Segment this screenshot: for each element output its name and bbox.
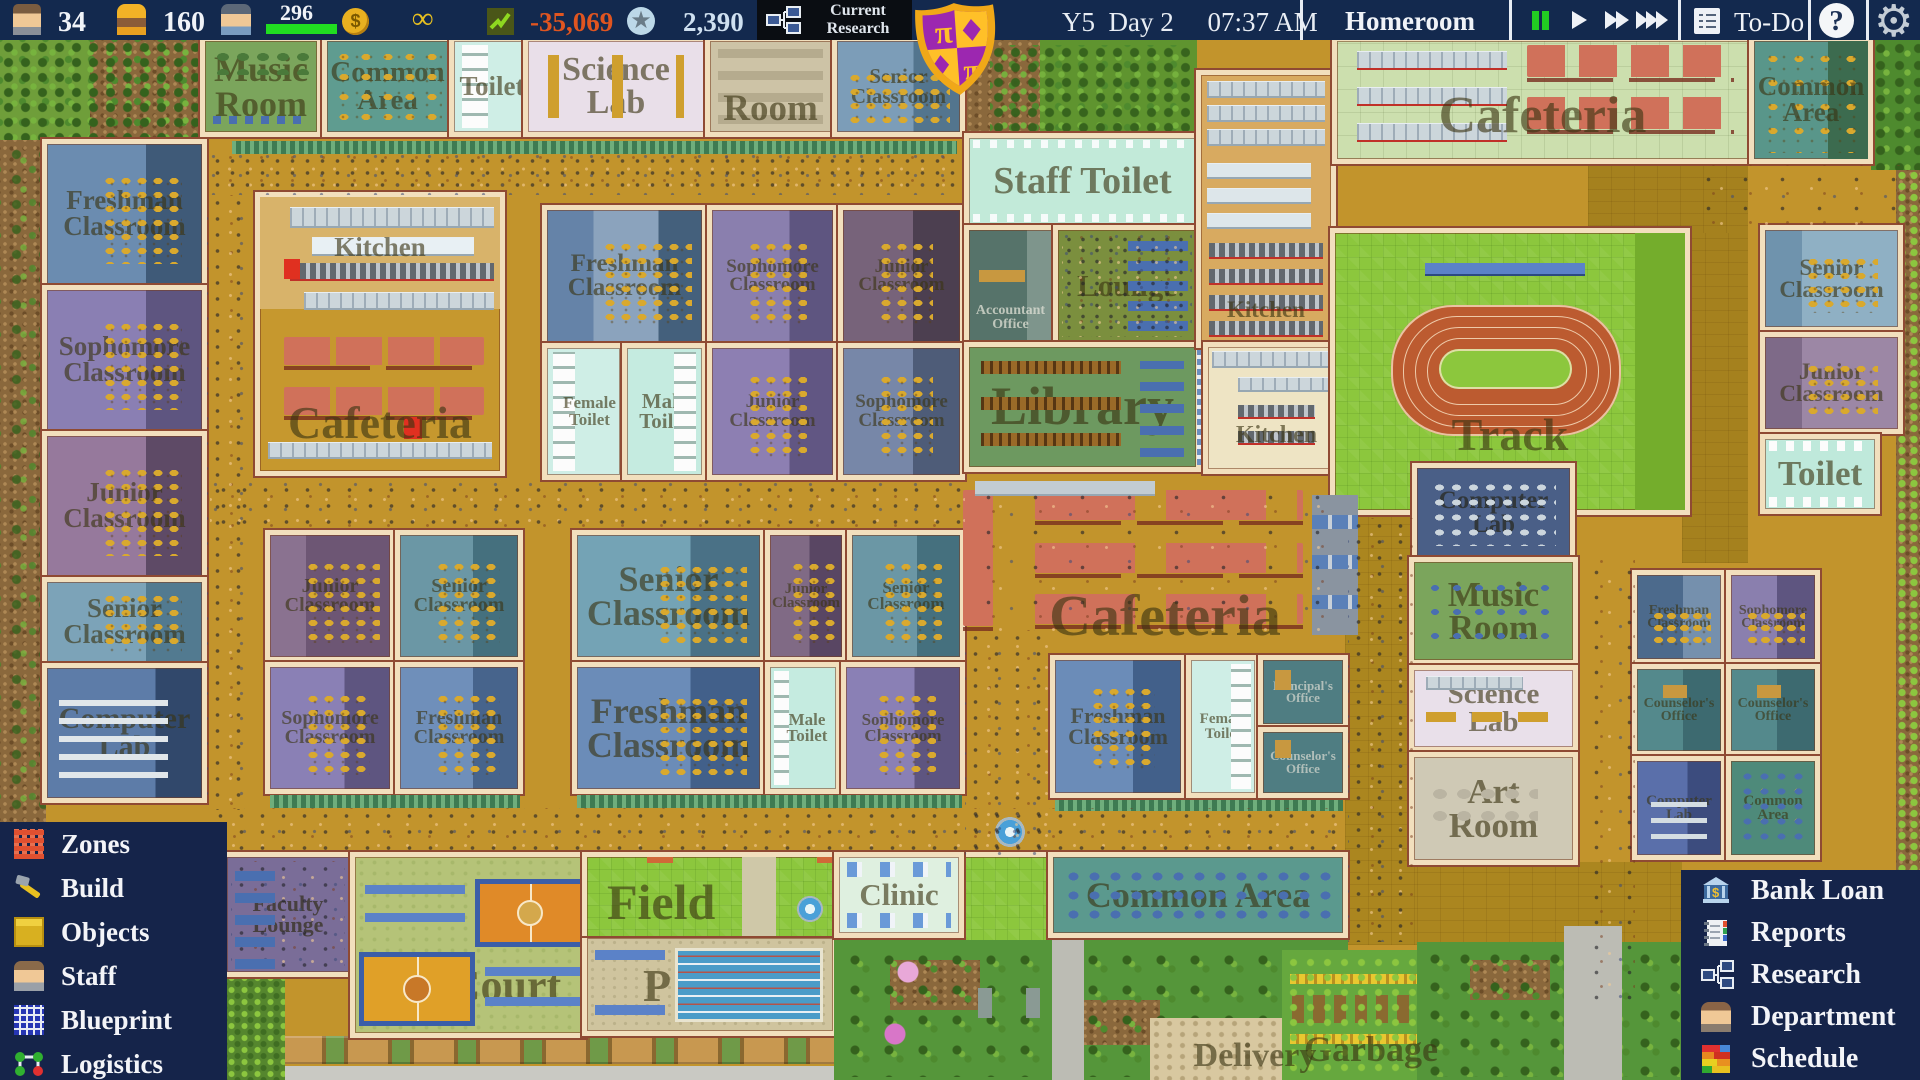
svg-text:π: π [934, 13, 954, 50]
svg-text:$: $ [1712, 885, 1720, 900]
